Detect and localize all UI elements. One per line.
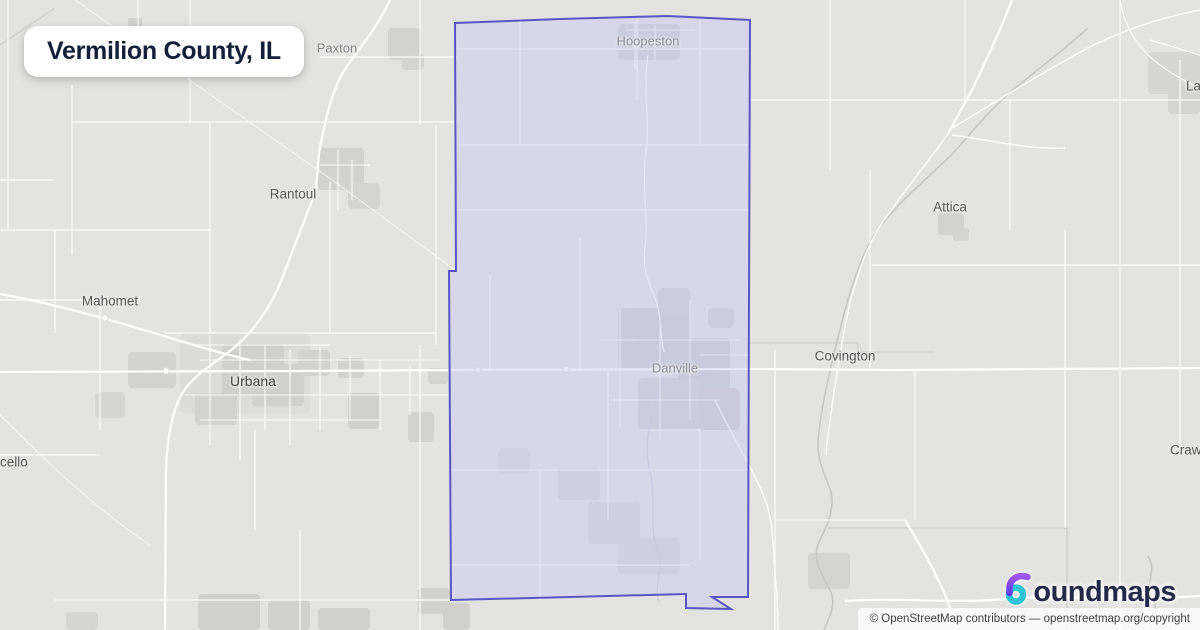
og-card: Paxton Hoopeston Rantoul Mahomet Urbana … — [0, 0, 1200, 630]
boundmaps-logo: oundmaps — [1005, 573, 1176, 605]
page-title: Vermilion County, IL — [47, 37, 281, 66]
boundmaps-logo-text: oundmaps — [1033, 579, 1176, 605]
map-canvas[interactable] — [0, 0, 1200, 630]
title-card: Vermilion County, IL — [24, 26, 304, 77]
osm-attribution-link[interactable]: © OpenStreetMap contributors — openstree… — [870, 613, 1190, 625]
boundmaps-b-mark-icon — [1005, 573, 1032, 605]
county-fill[interactable] — [449, 16, 750, 609]
attribution-bar: © OpenStreetMap contributors — openstree… — [858, 608, 1200, 630]
